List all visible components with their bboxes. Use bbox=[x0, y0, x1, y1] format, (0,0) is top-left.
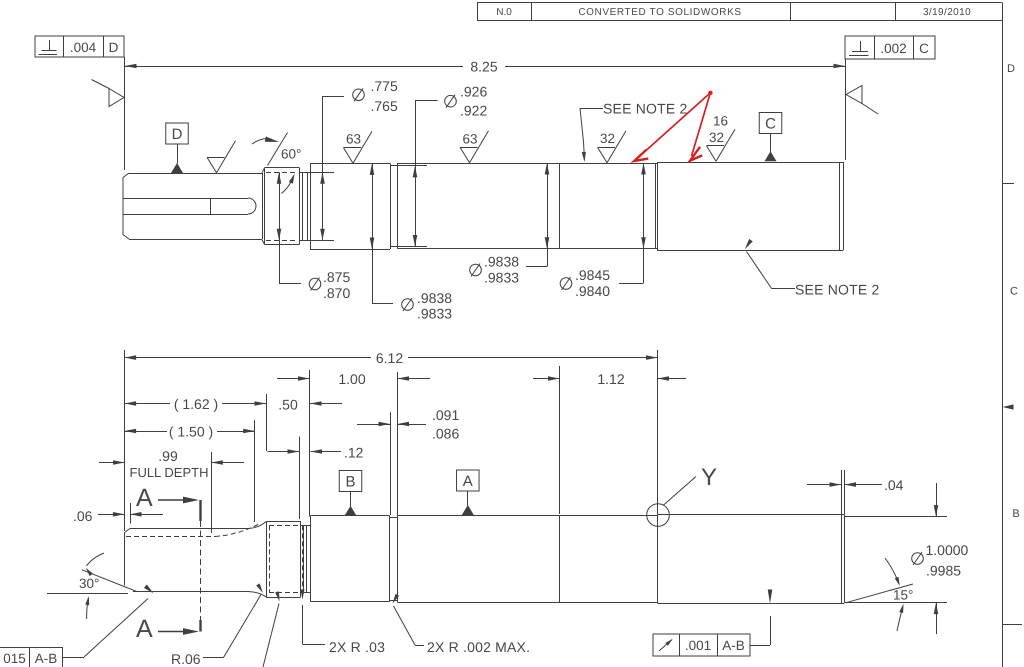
svg-text:60°: 60° bbox=[281, 147, 301, 162]
svg-text:A: A bbox=[136, 484, 153, 512]
svg-text:1.0000: 1.0000 bbox=[926, 542, 969, 558]
svg-text:63: 63 bbox=[346, 132, 361, 147]
svg-text:32: 32 bbox=[709, 130, 724, 145]
svg-text:.9985: .9985 bbox=[926, 563, 961, 579]
svg-text:N.0: N.0 bbox=[496, 7, 512, 18]
svg-text:015: 015 bbox=[3, 651, 26, 666]
svg-text:A-B: A-B bbox=[35, 651, 58, 666]
svg-text:.9840: .9840 bbox=[575, 283, 610, 299]
svg-text:C: C bbox=[919, 41, 929, 56]
svg-text:.9833: .9833 bbox=[417, 306, 452, 322]
svg-text:.765: .765 bbox=[371, 98, 398, 114]
svg-text:C: C bbox=[1010, 286, 1018, 298]
svg-text:( 1.50 ): ( 1.50 ) bbox=[169, 424, 213, 440]
svg-text:D: D bbox=[1007, 63, 1015, 75]
svg-text:Y: Y bbox=[701, 464, 717, 491]
svg-text:.086: .086 bbox=[432, 426, 459, 442]
svg-text:8.25: 8.25 bbox=[470, 59, 497, 75]
svg-text:.775: .775 bbox=[371, 78, 398, 94]
svg-text:1.12: 1.12 bbox=[597, 371, 624, 387]
svg-text:.12: .12 bbox=[344, 445, 364, 461]
svg-text:2X R .002 MAX.: 2X R .002 MAX. bbox=[427, 639, 530, 655]
svg-text:1.00: 1.00 bbox=[338, 371, 365, 387]
svg-text:.001: .001 bbox=[685, 638, 711, 653]
svg-text:.9838: .9838 bbox=[417, 290, 452, 306]
svg-text:B: B bbox=[1012, 508, 1019, 520]
svg-text:D: D bbox=[109, 40, 119, 55]
svg-text:.04: .04 bbox=[884, 477, 904, 493]
svg-text:SEE NOTE 2: SEE NOTE 2 bbox=[795, 282, 879, 298]
svg-text:.9838: .9838 bbox=[484, 254, 519, 270]
svg-text:.926: .926 bbox=[460, 84, 487, 100]
svg-text:B: B bbox=[345, 474, 355, 491]
svg-text:.99: .99 bbox=[158, 448, 178, 464]
svg-text:.9833: .9833 bbox=[484, 270, 519, 286]
svg-text:32: 32 bbox=[600, 131, 615, 146]
svg-text:30°: 30° bbox=[79, 576, 99, 591]
svg-text:D: D bbox=[172, 126, 183, 143]
svg-text:.004: .004 bbox=[70, 40, 97, 55]
svg-text:SEE NOTE 2: SEE NOTE 2 bbox=[603, 101, 687, 117]
svg-text:.9845: .9845 bbox=[575, 267, 610, 283]
svg-text:3/19/2010: 3/19/2010 bbox=[923, 7, 971, 18]
svg-text:6.12: 6.12 bbox=[376, 350, 403, 366]
svg-text:R.06: R.06 bbox=[171, 651, 201, 667]
svg-text:63: 63 bbox=[462, 131, 477, 146]
svg-text:C: C bbox=[765, 116, 776, 133]
svg-text:16: 16 bbox=[713, 113, 728, 128]
svg-text:( 1.62 ): ( 1.62 ) bbox=[174, 396, 218, 412]
svg-text:.50: .50 bbox=[278, 397, 298, 413]
svg-text:A-B: A-B bbox=[722, 638, 745, 653]
svg-text:15°: 15° bbox=[893, 588, 913, 603]
svg-text:FULL DEPTH: FULL DEPTH bbox=[130, 465, 209, 480]
svg-text:A: A bbox=[463, 473, 473, 490]
svg-text:A: A bbox=[136, 615, 153, 643]
svg-text:.870: .870 bbox=[323, 285, 350, 301]
svg-text:.922: .922 bbox=[460, 103, 487, 119]
svg-text:.06: .06 bbox=[73, 508, 93, 524]
svg-text:.002: .002 bbox=[880, 41, 906, 56]
svg-text:.875: .875 bbox=[323, 269, 350, 285]
svg-text:CONVERTED TO SOLIDWORKS: CONVERTED TO SOLIDWORKS bbox=[578, 7, 741, 18]
svg-text:.091: .091 bbox=[432, 407, 459, 423]
svg-text:2X R .03: 2X R .03 bbox=[329, 639, 385, 655]
